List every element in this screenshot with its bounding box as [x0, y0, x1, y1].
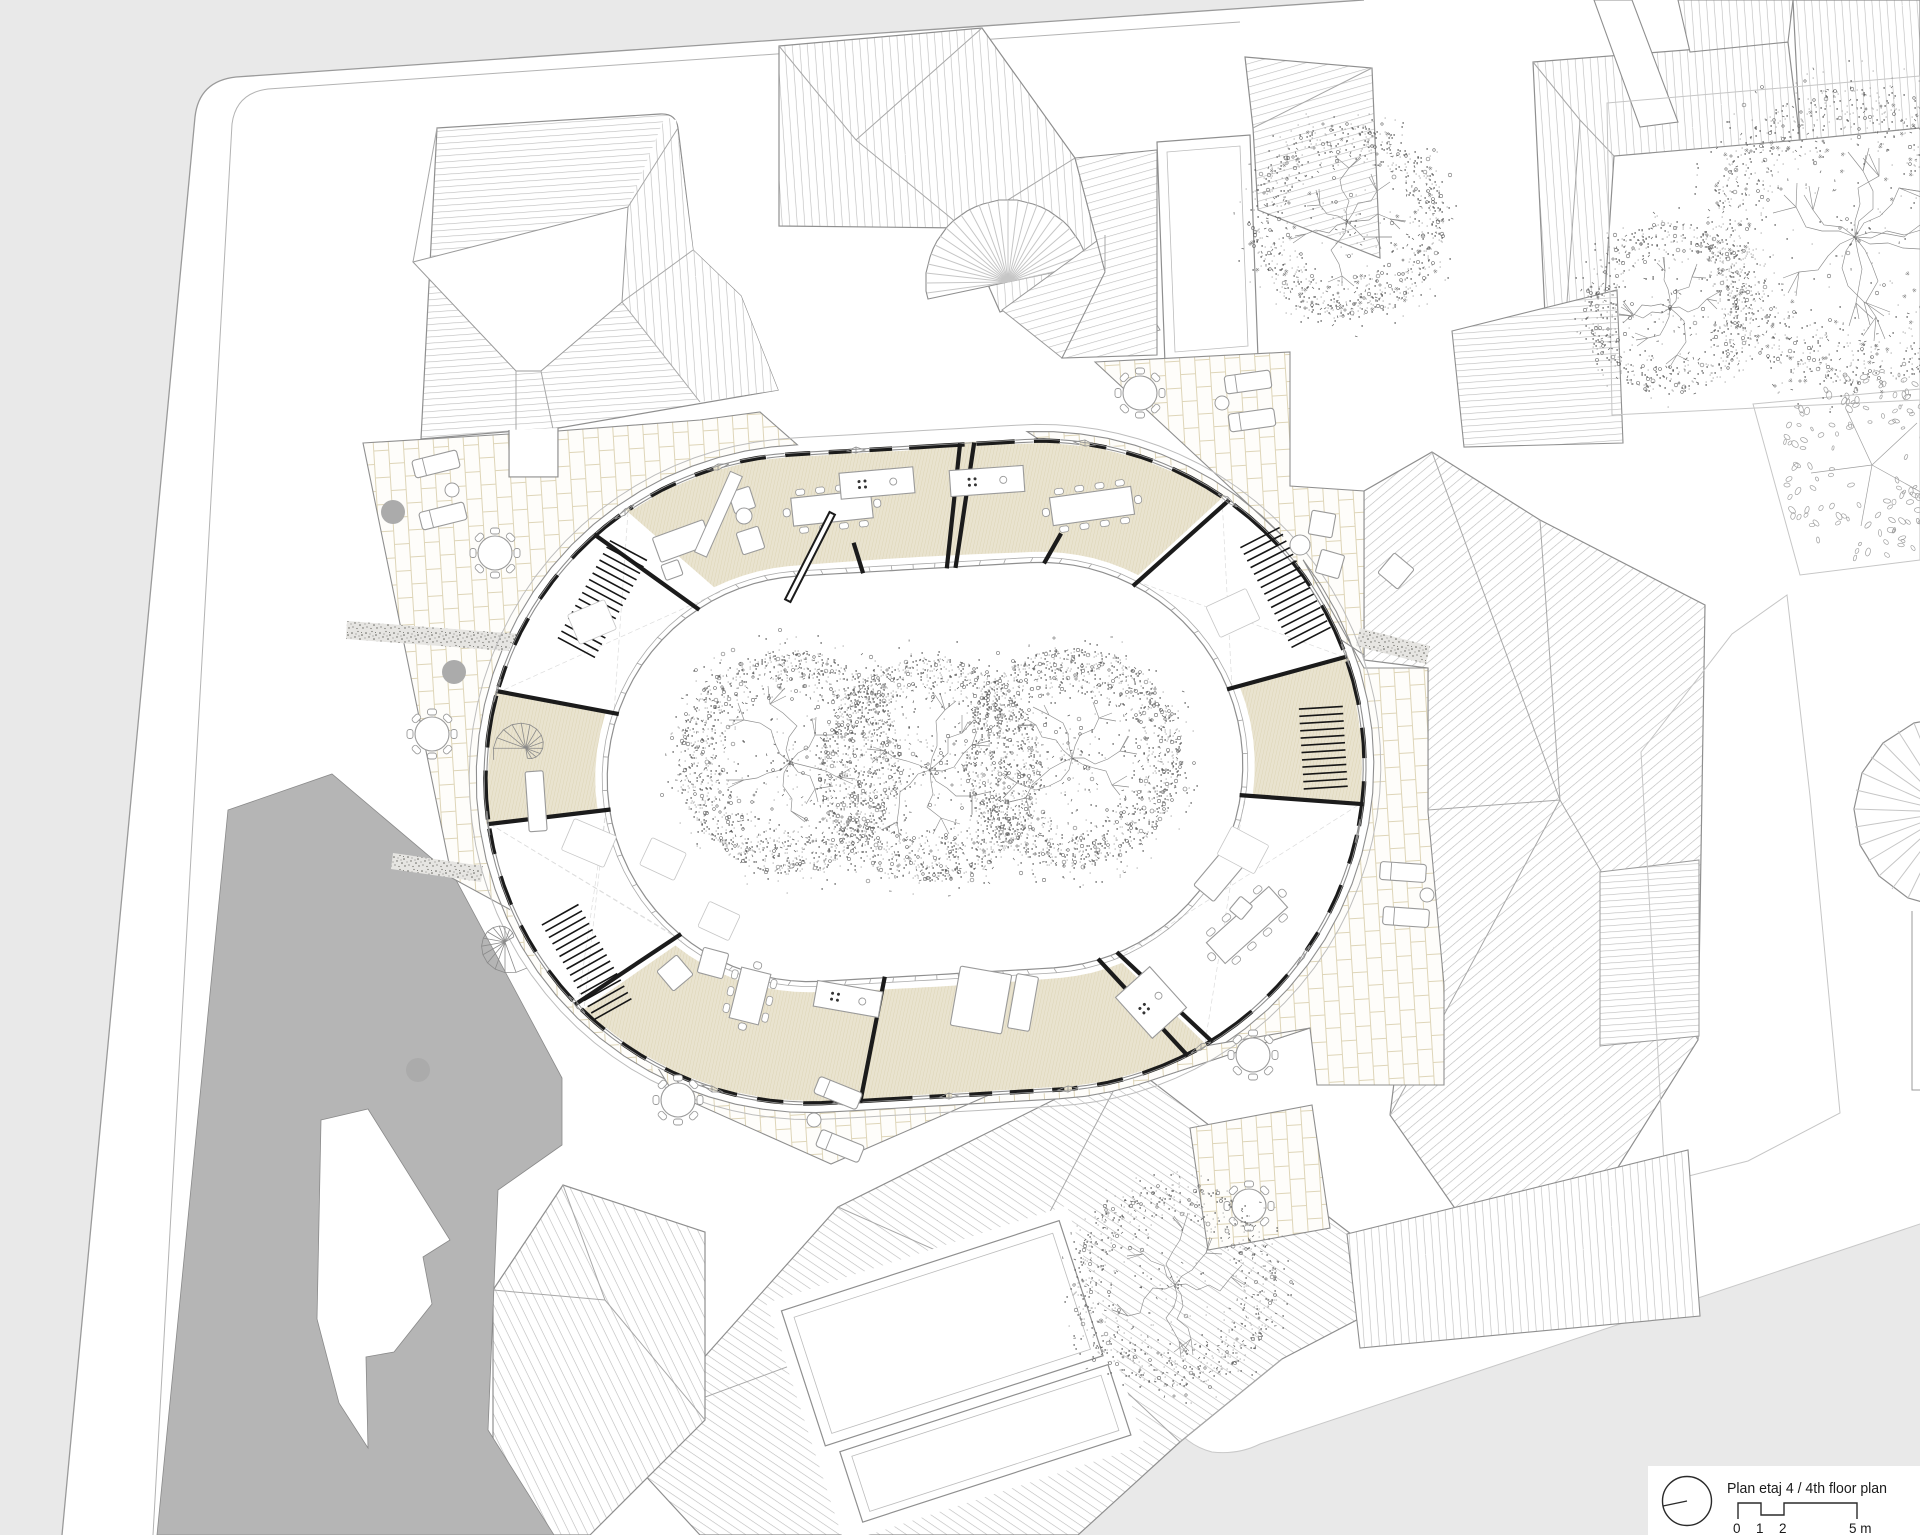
svg-text:Plan etaj 4 / 4th floor plan: Plan etaj 4 / 4th floor plan: [1727, 1480, 1887, 1497]
svg-text:5 m: 5 m: [1849, 1521, 1872, 1535]
svg-text:2: 2: [1779, 1521, 1787, 1535]
svg-text:0: 0: [1733, 1521, 1741, 1535]
svg-text:1: 1: [1756, 1521, 1764, 1535]
